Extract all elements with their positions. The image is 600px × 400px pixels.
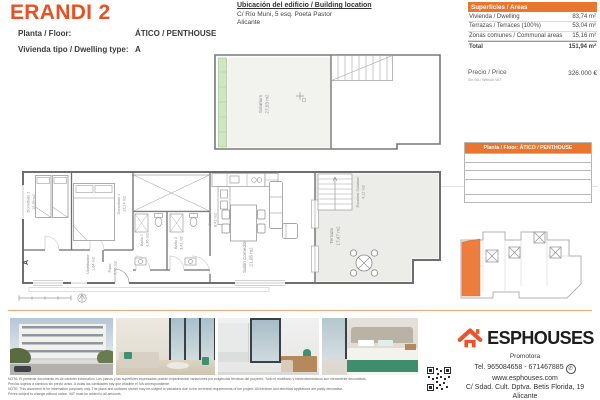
contact-city: Alicante bbox=[440, 392, 600, 400]
photo-window bbox=[250, 318, 280, 363]
location-title: Ubicación del edificio / Building locati… bbox=[237, 2, 372, 11]
site-key-plan-svg bbox=[453, 226, 593, 308]
areas-row-dwelling: Vivienda / Dwelling 83,74 m² bbox=[468, 12, 597, 22]
brand-subtitle: Promotora bbox=[450, 353, 600, 360]
areas-total-value: 151,94 m² bbox=[569, 44, 596, 50]
photo-cabinets bbox=[218, 323, 249, 363]
svg-text:3,42 m2: 3,42 m2 bbox=[180, 236, 184, 250]
photo-building-exterior bbox=[10, 318, 113, 375]
floor-level-table-row bbox=[465, 170, 591, 179]
room-label-solarium: Solarium 27,53 m2 bbox=[258, 94, 270, 114]
north-symbol bbox=[78, 294, 86, 302]
photo-green-blanket bbox=[347, 360, 418, 371]
areas-row-total: Total 151,94 m² bbox=[468, 41, 597, 51]
brand-name: ESPHOUSES bbox=[487, 328, 594, 349]
floor-level-table-header: Planta / Floor: ÁTICO / PENTHOUSE bbox=[465, 143, 591, 153]
contact-website: www.esphouses.com bbox=[440, 374, 600, 383]
solarium-floor bbox=[228, 58, 331, 148]
photo-plant bbox=[303, 349, 311, 356]
roof-stairs bbox=[332, 56, 393, 81]
room-label-terrace: Terraza 17,47 m2 bbox=[329, 226, 341, 246]
balcony-edge-below bbox=[29, 288, 269, 292]
photo-pillow bbox=[378, 340, 393, 347]
svg-text:1,64 m2: 1,64 m2 bbox=[92, 257, 96, 271]
svg-text:Dormitorio 1: Dormitorio 1 bbox=[117, 194, 121, 215]
areas-table: Superficies / Areas Vivienda / Dwelling … bbox=[468, 2, 597, 51]
floor-label: Planta / Floor: bbox=[18, 29, 71, 38]
areas-row-terraces: Terrazas / Terraces (100%) 53,04 m² bbox=[468, 22, 597, 32]
photo-green-cushion bbox=[124, 352, 132, 359]
planter-strip bbox=[219, 58, 227, 147]
areas-row-label: Terrazas / Terraces (100%) bbox=[469, 23, 541, 29]
floor-spec-row: Planta / Floor: ÁTICO / PENTHOUSE bbox=[18, 29, 71, 38]
brochure-page: ERANDI 2 Planta / Floor: ÁTICO / PENTHOU… bbox=[0, 0, 600, 400]
svg-text:4,36 m2: 4,36 m2 bbox=[146, 233, 150, 247]
esphouses-logo-icon bbox=[456, 325, 484, 351]
price-label: Precio / Price Sin IVA / Without VAT bbox=[468, 70, 507, 83]
room-label-bedroom1: Dormitorio 1 12,14 m2 bbox=[117, 194, 127, 215]
svg-text:7,76 m2: 7,76 m2 bbox=[114, 261, 118, 275]
photo-living-room bbox=[116, 318, 215, 375]
whatsapp-icon: ✆ bbox=[566, 364, 576, 374]
location-address: C/ Río Muni, 5 esq. Poeta Pastor bbox=[237, 11, 372, 20]
areas-row-label: Zonas comunes / Communal areas bbox=[469, 33, 562, 39]
price-value: 326.000 € bbox=[568, 70, 597, 77]
svg-text:Dormitorio 2: Dormitorio 2 bbox=[27, 192, 31, 213]
contact-address: C/ Sdad. Cult. Dptva. Betis Florida, 19 bbox=[440, 383, 600, 392]
contact-phone: Tel. 965084658 - 671467885 ✆ bbox=[440, 363, 600, 374]
svg-text:Solarium: Solarium bbox=[258, 95, 263, 113]
areas-total-label: Total bbox=[469, 44, 483, 50]
floor-level-table-row bbox=[465, 194, 591, 203]
svg-text:12,14 m2: 12,14 m2 bbox=[123, 196, 127, 212]
floor-level-table-row bbox=[465, 179, 591, 194]
areas-row-label: Vivienda / Dwelling bbox=[469, 14, 520, 20]
areas-row-value: 53,04 m² bbox=[572, 23, 596, 29]
svg-text:Terraza: Terraza bbox=[329, 228, 334, 244]
areas-row-value: 15,16 m² bbox=[572, 33, 596, 39]
svg-text:Distribuidor: Distribuidor bbox=[86, 254, 90, 274]
svg-text:Escalera Solarium: Escalera Solarium bbox=[356, 177, 360, 208]
contact-block: Tel. 965084658 - 671467885 ✆ www.esphous… bbox=[440, 363, 600, 400]
footer-divider bbox=[8, 310, 592, 311]
dwelling-level: Escalera Solarium 4,12 m2 Terraza 17,47 … bbox=[20, 172, 440, 292]
svg-text:4,12 m2: 4,12 m2 bbox=[362, 185, 366, 199]
photo-green-chair bbox=[202, 357, 209, 365]
photo-bedroom bbox=[322, 318, 418, 375]
phone-numbers: Tel. 965084658 - 671467885 bbox=[474, 364, 563, 371]
svg-text:8,41 m2: 8,41 m2 bbox=[214, 213, 218, 227]
page-title: ERANDI 2 bbox=[10, 1, 110, 25]
floor-level-table-row bbox=[465, 153, 591, 162]
floor-plan-svg: Solarium 27,53 m2 bbox=[15, 52, 445, 310]
section-mark: A bbox=[23, 260, 30, 265]
floor-value: ÁTICO / PENTHOUSE bbox=[135, 29, 216, 38]
svg-text:Paso: Paso bbox=[108, 264, 112, 273]
brand-row: ESPHOUSES bbox=[450, 323, 600, 353]
photo-nightstand bbox=[405, 344, 417, 350]
solarium-level: Solarium 27,53 m2 bbox=[215, 55, 440, 149]
areas-row-value: 83,74 m² bbox=[572, 14, 596, 20]
svg-text:17,47 m2: 17,47 m2 bbox=[336, 226, 341, 246]
areas-table-header: Superficies / Areas bbox=[468, 2, 597, 12]
terrace-stairs bbox=[318, 174, 352, 210]
photo-window bbox=[322, 318, 347, 359]
scale-bar bbox=[19, 296, 71, 301]
bedroom1-bed bbox=[74, 184, 115, 241]
room-label-bedroom2: Dormitorio 2 10,35 m2 bbox=[27, 192, 37, 213]
wardrobe bbox=[134, 175, 210, 211]
svg-text:21,06 m2: 21,06 m2 bbox=[249, 247, 254, 267]
svg-text:Baño 2: Baño 2 bbox=[174, 237, 178, 249]
disclaimer: NOTA: El presente documento es de caráct… bbox=[8, 377, 420, 397]
photo-window-frame bbox=[169, 318, 215, 361]
photo-pillow bbox=[358, 340, 373, 347]
qr-code bbox=[427, 367, 451, 396]
price-block: Precio / Price Sin IVA / Without VAT 326… bbox=[468, 70, 597, 83]
location-city: Alicante bbox=[237, 19, 372, 28]
photo-kitchen bbox=[218, 318, 319, 375]
highlighted-unit bbox=[462, 239, 480, 296]
room-label-bathroom1: Baño 1 4,36 m2 bbox=[140, 233, 150, 247]
building-location-block: Ubicación del edificio / Building locati… bbox=[237, 2, 372, 28]
svg-text:10,35 m2: 10,35 m2 bbox=[32, 194, 36, 210]
site-key-plan bbox=[453, 226, 593, 313]
room-label-bathroom2: Baño 2 3,42 m2 bbox=[174, 236, 184, 250]
areas-row-communal: Zonas comunes / Communal areas 15,16 m² bbox=[468, 32, 597, 42]
price-label-text: Precio / Price bbox=[468, 69, 507, 76]
photo-floor bbox=[218, 372, 319, 375]
floor-level-table-row bbox=[465, 162, 591, 171]
price-note: Sin IVA / Without VAT bbox=[468, 78, 501, 82]
floor-plan: Solarium 27,53 m2 bbox=[15, 52, 445, 315]
photo-car bbox=[14, 366, 30, 371]
svg-text:Salón Comedor: Salón Comedor bbox=[242, 241, 247, 273]
svg-text:27,53 m2: 27,53 m2 bbox=[265, 94, 270, 114]
disclaimer-line: Prices subject to change without notice.… bbox=[8, 392, 420, 397]
svg-text:Baño 1: Baño 1 bbox=[140, 234, 144, 246]
floor-level-table: Planta / Floor: ÁTICO / PENTHOUSE bbox=[464, 142, 592, 203]
photo-windows bbox=[22, 326, 102, 357]
